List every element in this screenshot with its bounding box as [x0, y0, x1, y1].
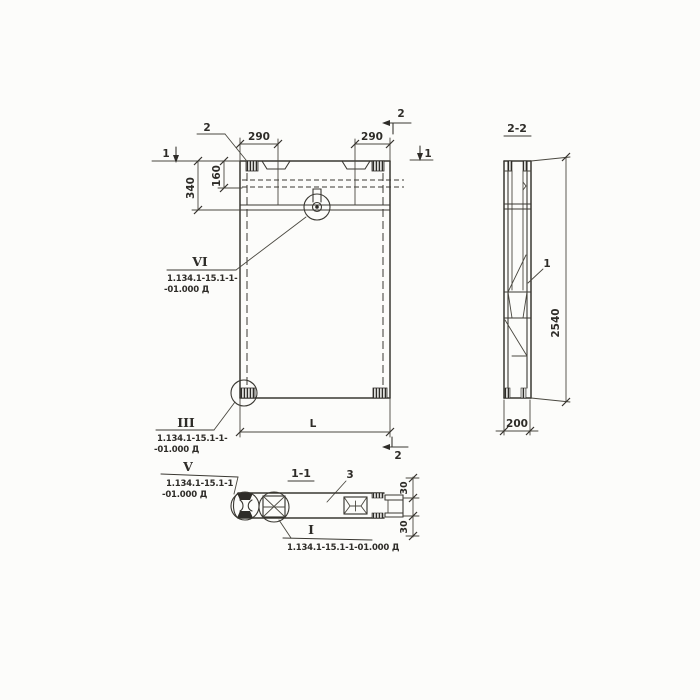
dim-30-flanges: 30 30 [399, 474, 419, 540]
callout-2-top-label: 2 [203, 122, 210, 134]
cut-marker-2-top-right: 2 [382, 108, 411, 134]
top-recess-left [262, 161, 290, 169]
detail-iii-ref1: 1.134.1-15.1-1- [157, 434, 228, 444]
detail-callout-i: I 1.134.1-15.1-1-01.000 Д [279, 520, 400, 553]
cut-marker-1-right: 1 [417, 146, 432, 161]
dim-340-label: 340 [185, 177, 197, 199]
dim-160: 160 [211, 157, 228, 192]
top-recess-right [342, 161, 370, 169]
dim-160-label: 160 [211, 165, 223, 187]
dim-200-label: 200 [506, 418, 528, 430]
cut-2-top-label: 2 [397, 108, 404, 120]
dim-290-right-label: 290 [361, 131, 383, 143]
dim-200: 200 [496, 400, 538, 435]
section-1-1-title: 1-1 [288, 467, 314, 481]
main-elevation-view: 290 290 340 160 L [152, 108, 433, 462]
cut-2-bottom-label: 2 [394, 450, 401, 462]
dim-30-bottom-label: 30 [399, 520, 410, 534]
detail-v-ref2: -01.000 Д [162, 490, 208, 500]
section-1-1-callout-label: 3 [346, 469, 353, 481]
dim-2540: 2540 [531, 153, 570, 406]
technical-drawing-sheet: 290 290 340 160 L [0, 0, 700, 700]
dim-length-label: L [310, 418, 317, 430]
detail-v-ref1: 1.134.1-15.1-1 [166, 479, 233, 489]
section-2-2-body [504, 161, 531, 398]
dim-290-left: 290 [236, 131, 282, 148]
dim-290-right: 290 [351, 131, 394, 148]
dim-340: 340 [185, 157, 202, 214]
detail-vi-mark: VI [191, 254, 208, 269]
panel-drawing: 290 290 340 160 L [0, 0, 700, 700]
callout-2-top: 2 [197, 122, 246, 160]
section-2-2-title-label: 2-2 [507, 122, 527, 135]
detail-i-ref: 1.134.1-15.1-1-01.000 Д [287, 543, 400, 553]
dim-30-top-label: 30 [399, 481, 410, 495]
dim-290-left-label: 290 [248, 131, 270, 143]
section-2-2-title: 2-2 [504, 122, 531, 136]
section-2-2-callout-label: 1 [543, 258, 550, 270]
dim-2540-label: 2540 [550, 308, 562, 337]
section-1-1-body [231, 492, 403, 522]
cut-1-left-label: 1 [162, 148, 169, 160]
detail-callout-vi: VI 1.134.1-15.1-1- -01.000 Д [164, 217, 306, 295]
rib-band [240, 205, 390, 210]
detail-callout-v: V 1.134.1-15.1-1 -01.000 Д [161, 459, 238, 500]
section-1-1-view: 1-1 3 [161, 459, 419, 553]
detail-callout-iii: III 1.134.1-15.1-1- -01.000 Д [154, 402, 235, 455]
cut-marker-2-bottom: 2 [382, 437, 408, 462]
panel-outline [240, 161, 390, 398]
embedded-plates-bottom [231, 380, 387, 406]
section-2-2-view: 2-2 [496, 122, 570, 435]
section-1-1-title-label: 1-1 [291, 467, 311, 480]
detail-v-mark: V [182, 459, 193, 474]
dim-length-L: L [236, 418, 394, 436]
detail-vi-ref1: 1.134.1-15.1-1- [167, 274, 238, 284]
detail-iii-mark: III [177, 415, 195, 430]
hidden-line-band [242, 180, 404, 187]
detail-vi-ref2: -01.000 Д [164, 285, 210, 295]
detail-i-mark: I [308, 522, 314, 537]
cut-1-right-label: 1 [424, 148, 431, 160]
detail-iii-ref2: -01.000 Д [154, 445, 200, 455]
